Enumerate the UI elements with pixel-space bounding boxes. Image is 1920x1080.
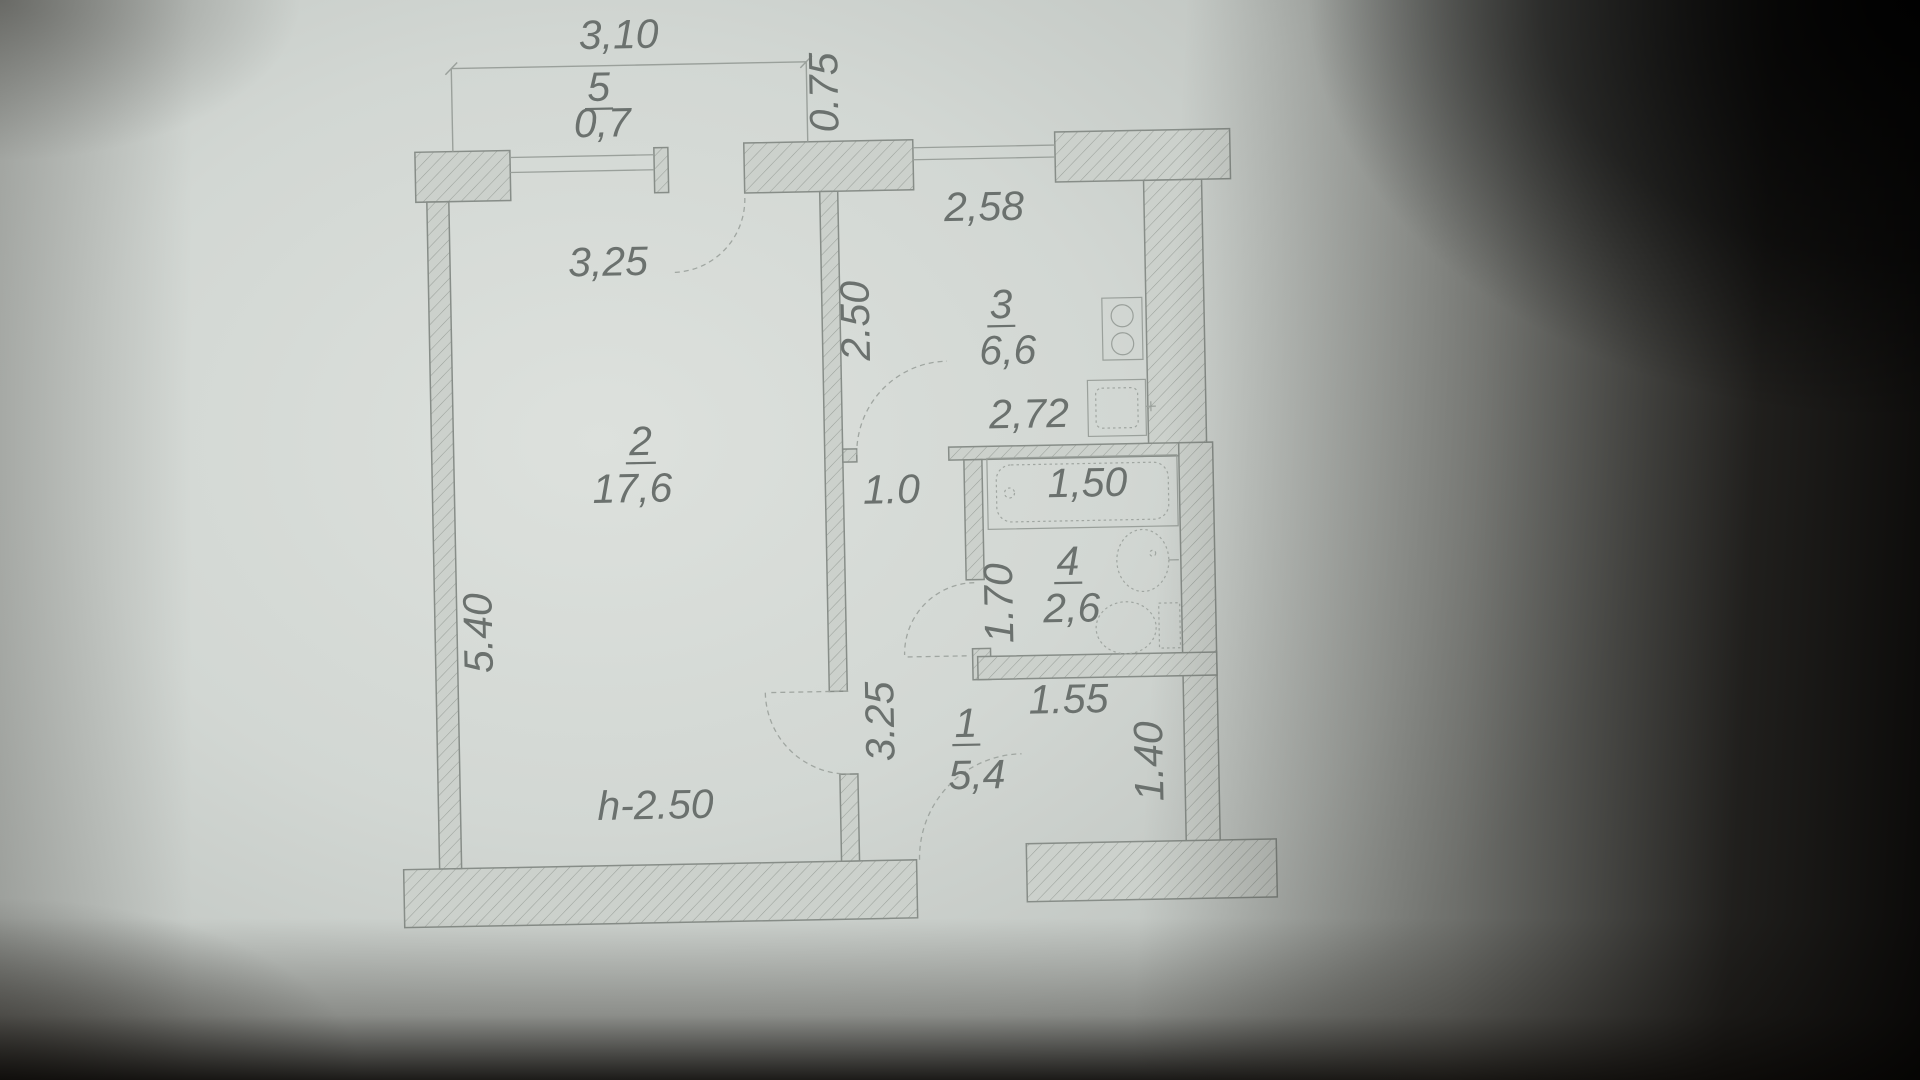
wall: [843, 449, 857, 462]
wall: [1026, 839, 1277, 902]
wall: [964, 459, 984, 579]
dim-kitchen-width: 2,58: [943, 183, 1025, 231]
dim-hallway-niche-width: 1.55: [1028, 675, 1109, 723]
wall: [1179, 442, 1221, 848]
photo-of-floor-plan: 3,10 5 0,7 0.75 3,25 2 17,6 5.40 h-2.50 …: [0, 0, 1920, 1080]
dim-passage-width: 1.0: [862, 466, 920, 513]
room-2-number: 2: [628, 418, 653, 464]
dim-kitchen-width-bottom: 2,72: [988, 390, 1070, 438]
dim-room2-length: 5.40: [454, 593, 502, 674]
balcony-door-arc: [672, 198, 746, 272]
wall: [427, 202, 462, 869]
dim-balcony-depth: 0.75: [800, 52, 848, 133]
wall: [840, 774, 860, 861]
dim-hallway-width: 1.40: [1125, 721, 1173, 802]
room-2-area: 17,6: [592, 464, 673, 512]
dim-kitchen-length: 2.50: [831, 280, 879, 362]
wall: [654, 147, 669, 192]
wall: [1144, 179, 1207, 456]
walls: [390, 128, 1278, 928]
dim-room2-width: 3,25: [568, 238, 649, 286]
wall: [820, 191, 848, 691]
room-1-number: 1: [954, 700, 978, 746]
wall: [1055, 129, 1231, 182]
bathroom-door-arc: [903, 583, 975, 657]
room-4-area: 2,6: [1042, 584, 1101, 631]
kitchen-sink-icon: [1087, 379, 1156, 436]
dim-balcony-width: 3,10: [578, 11, 659, 59]
room-3-area: 6,6: [979, 326, 1037, 373]
toilet-icon: [1096, 601, 1181, 655]
room-5-area: 0,7: [573, 99, 633, 146]
room-4-number: 4: [1056, 538, 1080, 584]
kitchen-door-arc: [855, 361, 949, 455]
wall: [415, 151, 511, 203]
room2-door-arc: [765, 691, 850, 776]
ceiling-height-note: h-2.50: [597, 781, 714, 829]
kitchen-window-icon: [913, 145, 1055, 160]
washbasin-icon: [1116, 529, 1179, 592]
wall: [404, 860, 918, 928]
wall: [744, 140, 914, 193]
dim-bathroom-width: 1,50: [1047, 459, 1128, 507]
dim-bathroom-length: 1.70: [975, 563, 1023, 644]
dim-hallway-length: 3.25: [856, 681, 904, 762]
floor-plan-drawing: 3,10 5 0,7 0.75 3,25 2 17,6 5.40 h-2.50 …: [0, 0, 1920, 1080]
stove-icon: [1102, 297, 1143, 360]
room2-balcony-window-icon: [510, 155, 654, 173]
labels: 3,10 5 0,7 0.75 3,25 2 17,6 5.40 h-2.50 …: [443, 1, 1173, 832]
room-3-number: 3: [989, 281, 1013, 327]
room-1-area: 5,4: [948, 751, 1006, 798]
